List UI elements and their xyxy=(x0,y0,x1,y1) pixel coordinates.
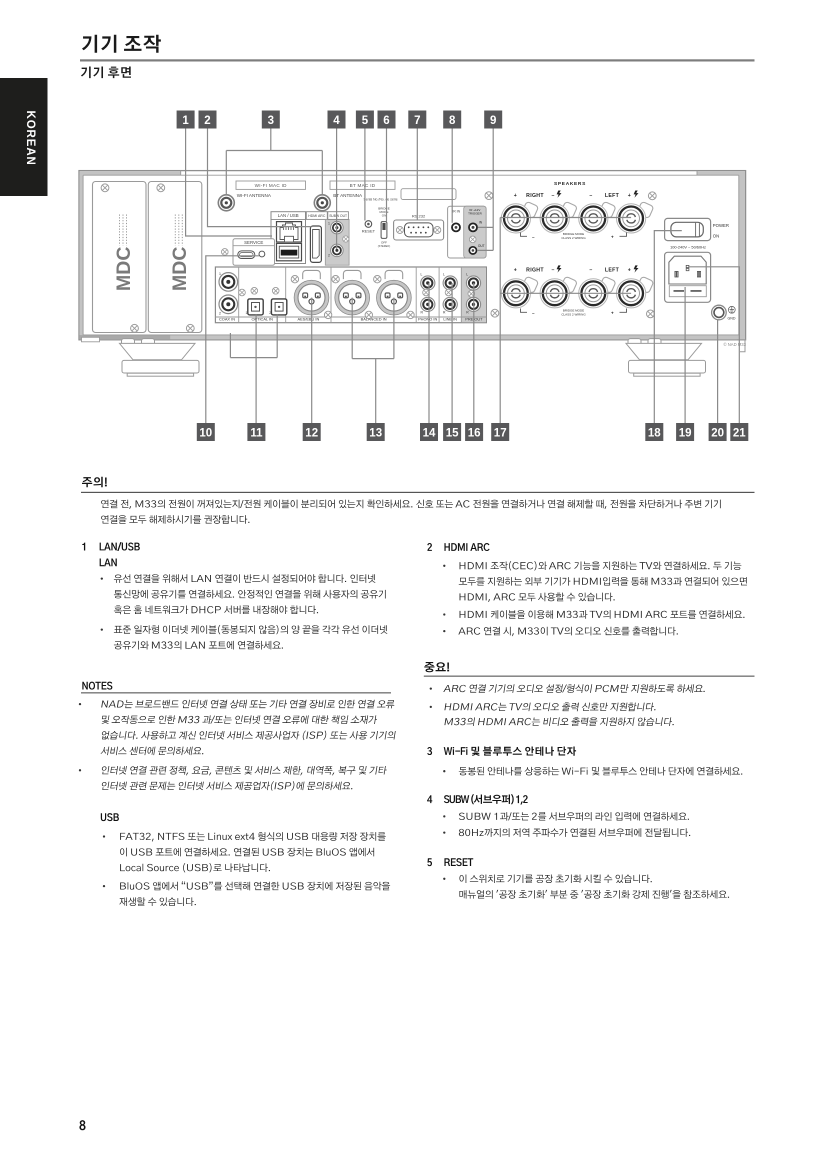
svg-text:6: 6 xyxy=(383,115,389,127)
svg-text:COAX IN: COAX IN xyxy=(219,317,235,322)
svg-text:L: L xyxy=(466,273,468,277)
svg-text:1: 1 xyxy=(219,272,221,276)
svg-text:© NAD M33: © NAD M33 xyxy=(724,342,747,347)
svg-text:SUBW OUT: SUBW OUT xyxy=(329,214,347,218)
svg-text:LINE IN: LINE IN xyxy=(443,317,457,322)
svg-text:–: – xyxy=(552,268,555,274)
svg-text:–: – xyxy=(532,310,535,315)
svg-text:BALANCED IN: BALANCED IN xyxy=(361,317,387,322)
svg-text:17: 17 xyxy=(494,427,507,439)
svg-text:RIGHT: RIGHT xyxy=(526,193,544,199)
svg-text:KOREAN: KOREAN xyxy=(24,111,36,166)
svg-text:10: 10 xyxy=(199,427,212,439)
svg-text:2: 2 xyxy=(219,312,221,316)
svg-text:RESET: RESET xyxy=(362,229,376,234)
svg-text:WI-FI ANTENNA: WI-FI ANTENNA xyxy=(237,193,272,198)
svg-text:SPEAKERS: SPEAKERS xyxy=(554,181,586,187)
svg-text:+: + xyxy=(611,310,614,315)
svg-text:1: 1 xyxy=(182,115,189,127)
svg-text:IR IN: IR IN xyxy=(452,210,460,214)
svg-text:8: 8 xyxy=(449,115,456,127)
svg-text:12: 12 xyxy=(305,427,318,439)
svg-text:L: L xyxy=(443,273,445,277)
svg-text:+: + xyxy=(514,268,517,274)
svg-text:AES/EBU IN: AES/EBU IN xyxy=(297,317,319,322)
svg-text:–: – xyxy=(589,193,592,199)
svg-text:2: 2 xyxy=(328,254,330,258)
svg-text:3: 3 xyxy=(268,115,274,127)
svg-text:POWER: POWER xyxy=(713,223,729,228)
svg-text:WI-FI MAC ID: WI-FI MAC ID xyxy=(255,183,288,188)
svg-text:21: 21 xyxy=(733,427,746,439)
svg-text:14: 14 xyxy=(423,427,436,439)
svg-text:1: 1 xyxy=(246,311,248,315)
svg-text:L: L xyxy=(421,273,423,277)
svg-text:BT ANTENNA: BT ANTENNA xyxy=(333,193,363,198)
svg-text:2: 2 xyxy=(269,311,271,315)
svg-text:LEFT: LEFT xyxy=(605,193,620,199)
svg-text:9: 9 xyxy=(490,115,496,127)
svg-text:MDC: MDC xyxy=(113,247,135,291)
svg-text:LEFT: LEFT xyxy=(605,268,620,274)
svg-text:–: – xyxy=(532,234,535,239)
svg-text:+: + xyxy=(514,193,517,199)
svg-text:ON: ON xyxy=(713,234,719,239)
svg-text:7: 7 xyxy=(414,115,420,127)
svg-text:MDC: MDC xyxy=(169,247,191,291)
svg-text:OPTICAL IN: OPTICAL IN xyxy=(251,317,273,322)
svg-text:OUT: OUT xyxy=(478,244,485,248)
svg-text:–: – xyxy=(552,193,555,199)
svg-text:GND: GND xyxy=(728,317,736,321)
svg-text:RIGHT: RIGHT xyxy=(526,268,544,274)
svg-text:RS 232: RS 232 xyxy=(412,213,426,218)
svg-text:20: 20 xyxy=(711,427,724,439)
svg-text:BT MAC ID: BT MAC ID xyxy=(350,183,376,188)
svg-text:19: 19 xyxy=(679,427,692,439)
svg-text:4: 4 xyxy=(333,115,340,127)
svg-text:CLASS 2 WIRING: CLASS 2 WIRING xyxy=(561,312,586,316)
svg-text:100-240V ~ 50/60Hz: 100-240V ~ 50/60Hz xyxy=(670,244,706,249)
svg-text:15: 15 xyxy=(446,427,459,439)
svg-text:11: 11 xyxy=(250,427,263,439)
svg-text:SERVICE: SERVICE xyxy=(244,240,263,245)
svg-text:+: + xyxy=(628,268,631,274)
svg-text:18: 18 xyxy=(648,427,661,439)
svg-text:(STEREO): (STEREO) xyxy=(378,244,391,248)
svg-text:2: 2 xyxy=(204,115,210,127)
svg-text:1: 1 xyxy=(328,221,330,225)
svg-text:13: 13 xyxy=(369,427,382,439)
svg-text:OFF: OFF xyxy=(381,241,387,245)
svg-text:CLASS 2 WIRING: CLASS 2 WIRING xyxy=(561,236,586,240)
svg-text:+: + xyxy=(611,234,614,239)
svg-text:TRIGGER: TRIGGER xyxy=(468,212,483,216)
svg-text:Serial No./No. de série: Serial No./No. de série xyxy=(364,197,398,201)
svg-text:–: – xyxy=(589,268,592,274)
svg-text:16: 16 xyxy=(468,427,481,439)
svg-text:HDMI ARC: HDMI ARC xyxy=(308,214,326,218)
svg-text:ON: ON xyxy=(382,214,387,218)
svg-text:+: + xyxy=(628,193,631,199)
svg-text:5: 5 xyxy=(362,115,369,127)
svg-text:LAN / USB: LAN / USB xyxy=(278,213,299,218)
svg-text:PHONO IN: PHONO IN xyxy=(418,317,437,322)
